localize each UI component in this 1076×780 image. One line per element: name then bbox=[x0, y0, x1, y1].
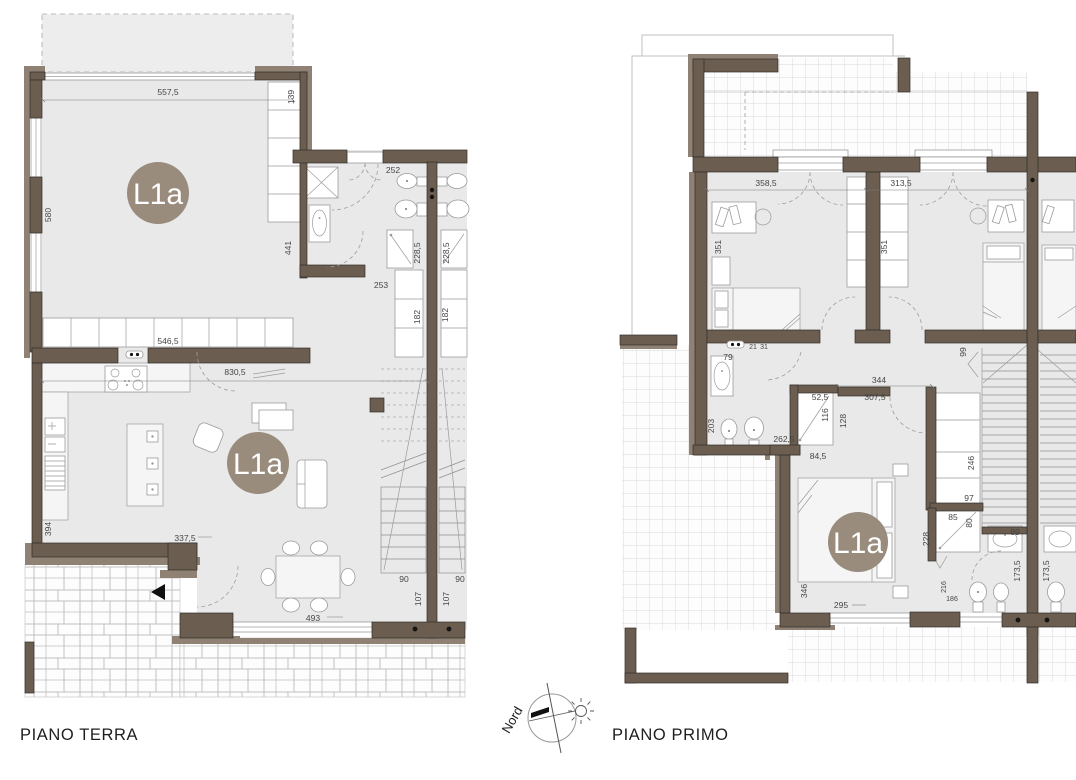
nightstand bbox=[893, 464, 908, 476]
floorplan-canvas: 557,5 139 580 441 252 228,5 228,5 253 18… bbox=[0, 0, 1076, 780]
dim-label: 441 bbox=[283, 241, 293, 255]
toilet-icon bbox=[395, 200, 427, 218]
dim-label: 203 bbox=[706, 419, 716, 433]
floor-title-first: PIANO PRIMO bbox=[612, 726, 729, 744]
dim-label: 351 bbox=[713, 240, 723, 254]
dim-label: 139 bbox=[286, 90, 296, 104]
dim-label: 90 bbox=[455, 574, 465, 584]
dishwasher-hatch bbox=[45, 456, 65, 490]
dim-label: 493 bbox=[306, 613, 320, 623]
dim-label: 31 bbox=[760, 344, 768, 351]
nightstand bbox=[712, 257, 730, 285]
unit-badge: L1a bbox=[127, 162, 189, 224]
desk bbox=[988, 200, 1024, 232]
dim-label: 107 bbox=[441, 592, 451, 606]
dim-label: 351 bbox=[879, 240, 889, 254]
dim-label: 79 bbox=[723, 352, 733, 362]
dim-label: 580 bbox=[43, 208, 53, 222]
washbasin-icon bbox=[309, 205, 330, 242]
dim-label: 346 bbox=[799, 584, 809, 598]
dim-label: 216 bbox=[941, 581, 948, 593]
shower-icon bbox=[305, 167, 338, 198]
shower2-icon bbox=[387, 230, 413, 268]
sofa-icon bbox=[297, 460, 327, 508]
unit-badge: L1a bbox=[227, 432, 289, 494]
dim-label: 337,5 bbox=[174, 533, 196, 543]
dim-label: 90 bbox=[399, 574, 409, 584]
floor-title-ground: PIANO TERRA bbox=[20, 726, 138, 744]
dim-label: 80 bbox=[964, 518, 974, 528]
dim-label: 21 bbox=[749, 344, 757, 351]
unit-badge-label: L1a bbox=[233, 448, 283, 481]
dim-label: 344 bbox=[872, 375, 886, 385]
bed-icon bbox=[712, 288, 800, 330]
dim-label: 252 bbox=[386, 165, 400, 175]
dim-label: 85 bbox=[948, 512, 958, 522]
pergola-dashed-area bbox=[42, 14, 293, 72]
washbasin-icon bbox=[711, 356, 733, 396]
dim-label: 262,5 bbox=[773, 434, 795, 444]
shower-icon bbox=[936, 508, 980, 552]
dim-label: 546,5 bbox=[157, 336, 179, 346]
dim-label: 97 bbox=[964, 493, 974, 503]
dim-label: 313,5 bbox=[890, 178, 912, 188]
dim-label: 116 bbox=[820, 408, 830, 422]
dim-label: 228,5 bbox=[441, 242, 451, 264]
sink-icon bbox=[45, 418, 65, 452]
dim-label: 84,5 bbox=[810, 451, 827, 461]
dim-label: 394 bbox=[43, 522, 53, 536]
unit-badge-label: L1a bbox=[133, 178, 183, 211]
dim-label: 186 bbox=[946, 596, 958, 603]
bed-icon bbox=[983, 243, 1024, 333]
dim-label: 128 bbox=[838, 414, 848, 428]
dim-label: 295 bbox=[834, 600, 848, 610]
dim-label: 228 bbox=[921, 532, 931, 546]
dim-label: 307,5 bbox=[864, 392, 886, 402]
dim-label: 228,5 bbox=[412, 242, 422, 264]
dim-label: 173,5 bbox=[1041, 560, 1051, 582]
dim-label: 173,5 bbox=[1012, 560, 1022, 582]
stove-icon bbox=[105, 366, 147, 392]
patio-wall-stub bbox=[25, 642, 34, 693]
mirror-bedroom bbox=[1042, 200, 1076, 333]
nightstand bbox=[893, 586, 908, 598]
dim-label: 557,5 bbox=[157, 87, 179, 97]
first-floor-plan: 358,5 351 313,5 351 21 31 79 203 262,5 5… bbox=[620, 35, 1076, 683]
pillar bbox=[370, 398, 384, 412]
dim-label: 107 bbox=[413, 592, 423, 606]
dim-label: 182 bbox=[440, 308, 450, 322]
dim-label: 246 bbox=[966, 456, 976, 470]
dim-label: 182 bbox=[412, 310, 422, 324]
unit-badge: L1a bbox=[828, 512, 888, 572]
ff-closet bbox=[932, 393, 980, 507]
dim-label: 253 bbox=[374, 280, 388, 290]
dim-label: 830,5 bbox=[224, 367, 246, 377]
dim-label: 99 bbox=[958, 347, 968, 357]
dim-label: 52,5 bbox=[812, 392, 829, 402]
unit-badge-label: L1a bbox=[833, 527, 883, 560]
dim-label: 89 bbox=[1010, 527, 1020, 537]
dim-label: 358,5 bbox=[755, 178, 777, 188]
island-stools bbox=[147, 431, 158, 495]
